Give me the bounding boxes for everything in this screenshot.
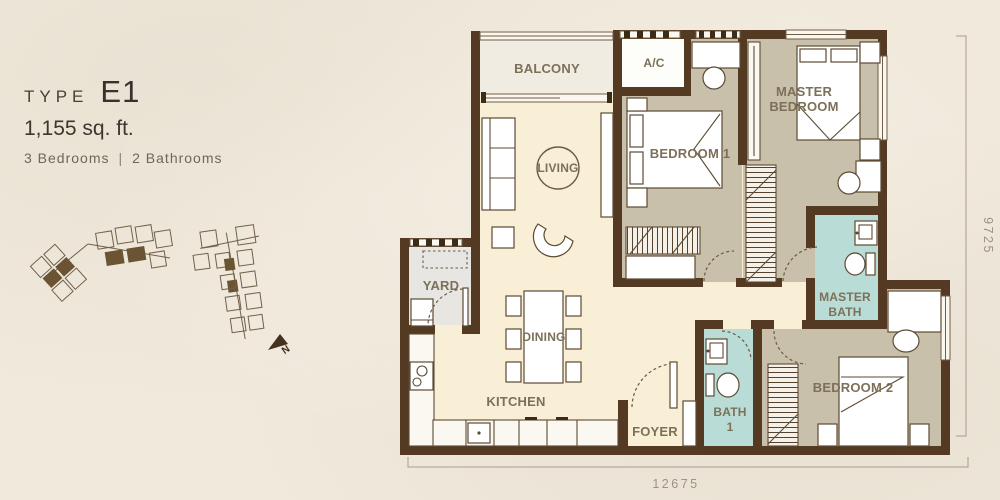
ac-louvre-window (620, 31, 680, 38)
kitchen-label: KITCHEN (486, 394, 545, 409)
floor-plan-page: TYPE E1 1,155 sq. ft. 3 Bedrooms | 2 Bat… (0, 0, 1000, 500)
master-bedroom-label-2: BEDROOM (769, 99, 838, 114)
side-table-icon (492, 227, 514, 248)
bedside-table-icon (627, 188, 647, 207)
yard-door-leaf (463, 288, 468, 326)
bedroom1-wardrobe-icon (626, 227, 700, 254)
height-dimension-label: 9725 (981, 217, 995, 255)
master-bedroom-top-window (786, 30, 846, 39)
height-dimension-line (956, 36, 966, 436)
toilet-icon (717, 373, 739, 397)
sofa-icon (482, 118, 515, 210)
site-plan-thumbnail-1 (30, 220, 175, 301)
width-dimension-line (408, 457, 968, 467)
bedside-table-icon (860, 139, 880, 160)
tv-console-icon (601, 113, 613, 217)
balcony-label: BALCONY (514, 61, 580, 76)
bedroom2-label: BEDROOM 2 (813, 380, 894, 395)
north-arrow-icon: N (268, 334, 292, 357)
desk-icon (626, 256, 695, 279)
foyer-label: FOYER (632, 424, 678, 439)
living-label: LIVING (537, 161, 578, 175)
toilet-icon (845, 253, 865, 275)
kitchen-counter-bottom (433, 420, 618, 446)
ac-label: A/C (643, 56, 664, 70)
desk-icon (888, 291, 941, 332)
bedside-table-icon (627, 98, 647, 111)
dining-chair-icon (566, 296, 581, 316)
master-bath-label-1: MASTER (819, 290, 871, 304)
foyer-cabinet-icon (683, 401, 696, 446)
master-bedroom-right-window (878, 56, 887, 140)
chair-icon (893, 330, 919, 352)
mirror-icon (703, 67, 725, 89)
bedside-table-icon (818, 424, 837, 446)
site-plan-thumbnail-2 (190, 224, 273, 344)
bedside-table-icon (860, 42, 880, 63)
dresser-icon (692, 42, 740, 68)
north-label: N (280, 344, 292, 357)
dining-chair-icon (506, 362, 521, 382)
yard-label: YARD (423, 278, 459, 293)
bedroom1-label: BEDROOM 1 (650, 146, 731, 161)
yard-louvre-window (410, 239, 462, 246)
master-bath-label-2: BATH (828, 305, 861, 319)
dining-chair-icon (566, 362, 581, 382)
bedroom2-right-window (941, 296, 950, 360)
dining-chair-icon (506, 296, 521, 316)
mirror-icon (838, 172, 860, 194)
bed2-icon (839, 357, 908, 446)
floor-plan-svg: BALCONY A/C LIVING BEDROOM 1 MASTER BEDR… (0, 0, 1000, 500)
master-bedroom-label-1: MASTER (776, 84, 833, 99)
bath1-label-1: BATH (713, 405, 746, 419)
bedroom1-louvre-window (696, 31, 740, 38)
width-dimension-label: 12675 (652, 477, 699, 491)
bath1-label-2: 1 (727, 420, 734, 434)
dining-chair-icon (566, 329, 581, 349)
dining-label: DINING (522, 330, 565, 344)
master-wardrobe-icon (746, 165, 776, 282)
washer-icon (411, 299, 433, 326)
dining-chair-icon (506, 329, 521, 349)
bedroom2-wardrobe-icon (768, 364, 798, 446)
foyer-door-leaf (670, 362, 677, 408)
bedside-table-icon (910, 424, 929, 446)
